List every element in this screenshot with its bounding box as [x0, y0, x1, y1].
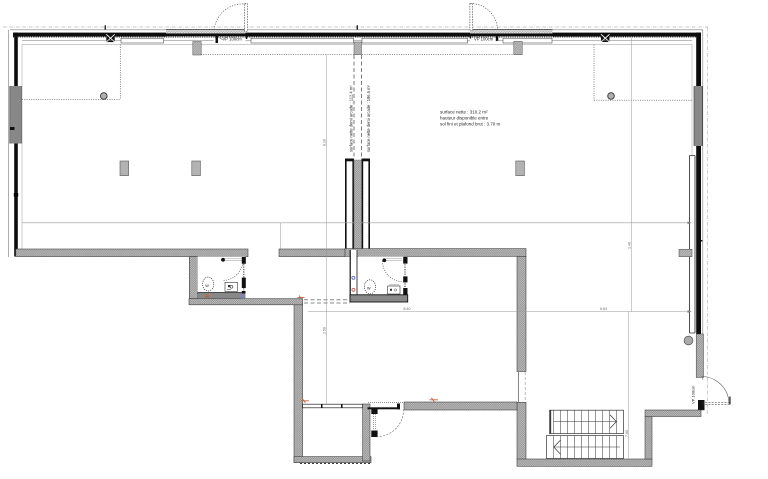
- svg-text:VP 100cm: VP 100cm: [223, 37, 243, 42]
- svg-text:W: W: [367, 287, 371, 291]
- svg-text:8.40: 8.40: [404, 307, 411, 311]
- svg-text:2.50: 2.50: [323, 327, 327, 334]
- svg-text:VP 100cm: VP 100cm: [691, 385, 696, 404]
- svg-text:VP 100cm: VP 100cm: [474, 37, 494, 42]
- svg-text:surface nette : 310.2 m²: surface nette : 310.2 m²: [440, 110, 488, 115]
- svg-text:surface nette demi arcade : 19: surface nette demi arcade : 196.5 m²: [366, 84, 371, 152]
- svg-text:W: W: [205, 284, 209, 288]
- svg-text:1.40: 1.40: [628, 242, 632, 249]
- svg-text:6.63: 6.63: [600, 307, 607, 311]
- svg-text:surface nette demi arcade : 11: surface nette demi arcade : 112.4 m²: [348, 85, 353, 152]
- svg-text:7.60: 7.60: [625, 430, 629, 437]
- svg-text:hauteur disponible entre: hauteur disponible entre: [440, 115, 489, 120]
- svg-text:sol fini et plafond brut : 3.7: sol fini et plafond brut : 3.70 m: [440, 121, 501, 126]
- svg-text:8.10: 8.10: [323, 139, 327, 146]
